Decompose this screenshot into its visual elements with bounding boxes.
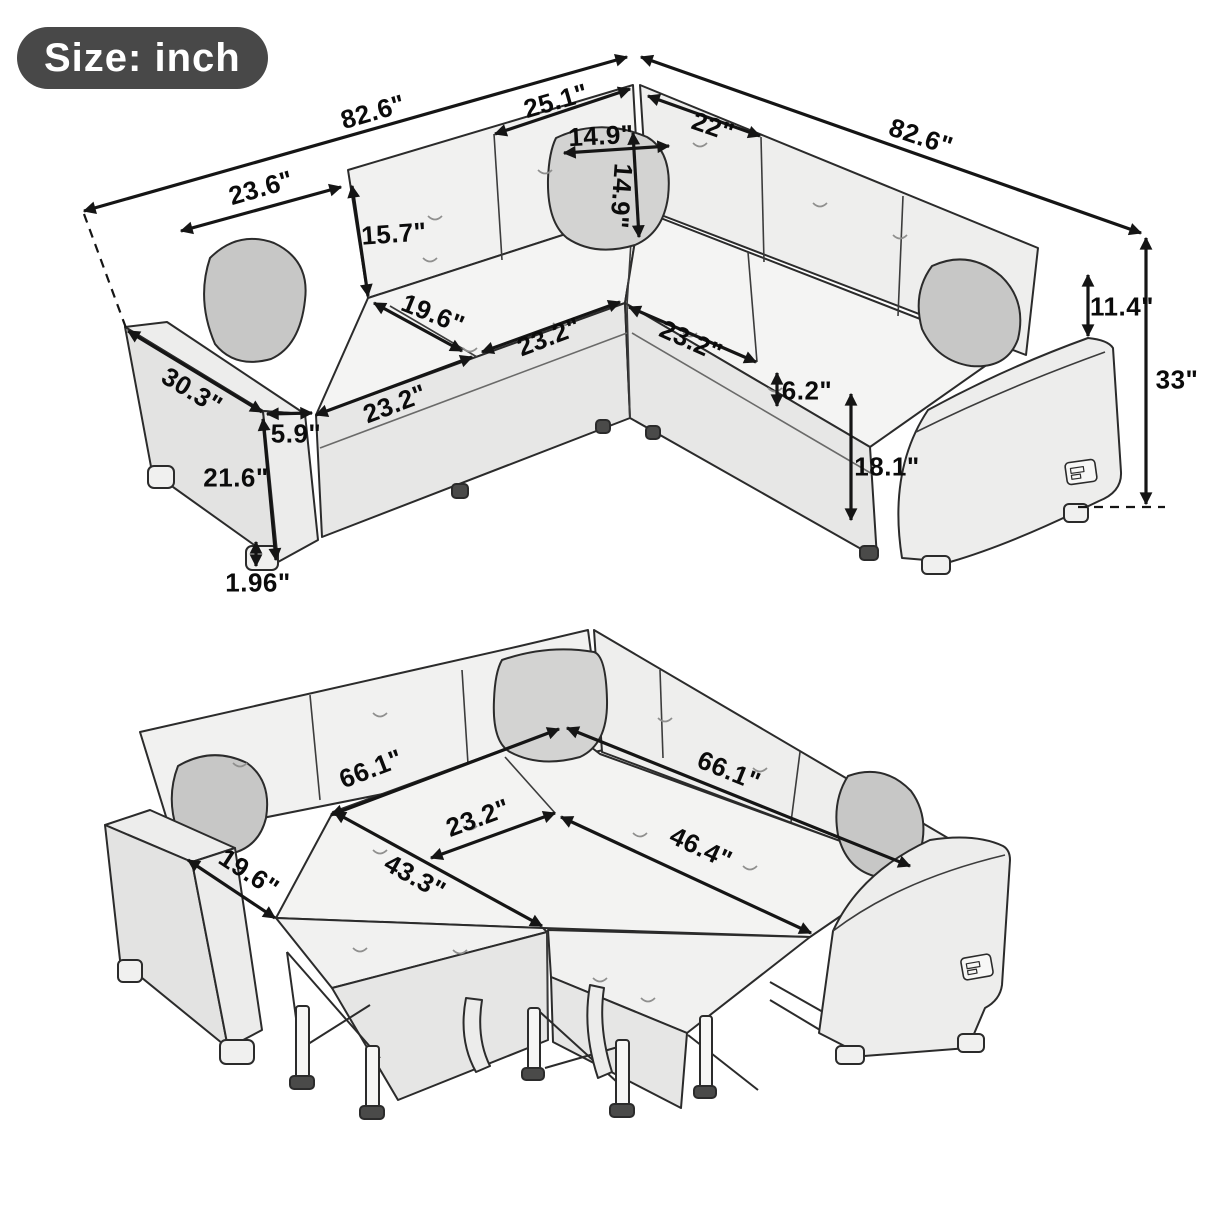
dim-upright-leg-height: 1.96" <box>225 568 290 599</box>
dim-line-armrest-width <box>267 413 312 414</box>
ext-line-left <box>84 214 126 328</box>
dim-upright-back-above-arm: 11.4" <box>1090 292 1154 323</box>
dim-upright-overall-height: 33" <box>1156 365 1199 396</box>
dim-upright-arm-height: 21.6" <box>203 463 268 494</box>
dim-upright-backrest-height: 15.7" <box>360 216 427 251</box>
sofa-dimension-diagram: Size: inch 82.6" 25.1" 82.6" 22" 14.9" 1… <box>0 0 1214 1214</box>
dim-upright-pillow-width: 14.9" <box>568 119 635 153</box>
bed-corner-pillow <box>494 649 607 761</box>
dim-upright-pillow-height: 14.9" <box>603 162 638 229</box>
size-unit-badge: Size: inch <box>17 27 268 89</box>
dim-upright-cushion-thickness: 6.2" <box>782 376 832 407</box>
dim-upright-seat-height: 18.1" <box>854 452 919 483</box>
usb-port-upright <box>1065 459 1098 485</box>
usb-port-bed <box>960 954 993 981</box>
upright-throw-pillow-left <box>204 239 306 362</box>
dim-upright-armrest-width: 5.9" <box>271 419 321 450</box>
